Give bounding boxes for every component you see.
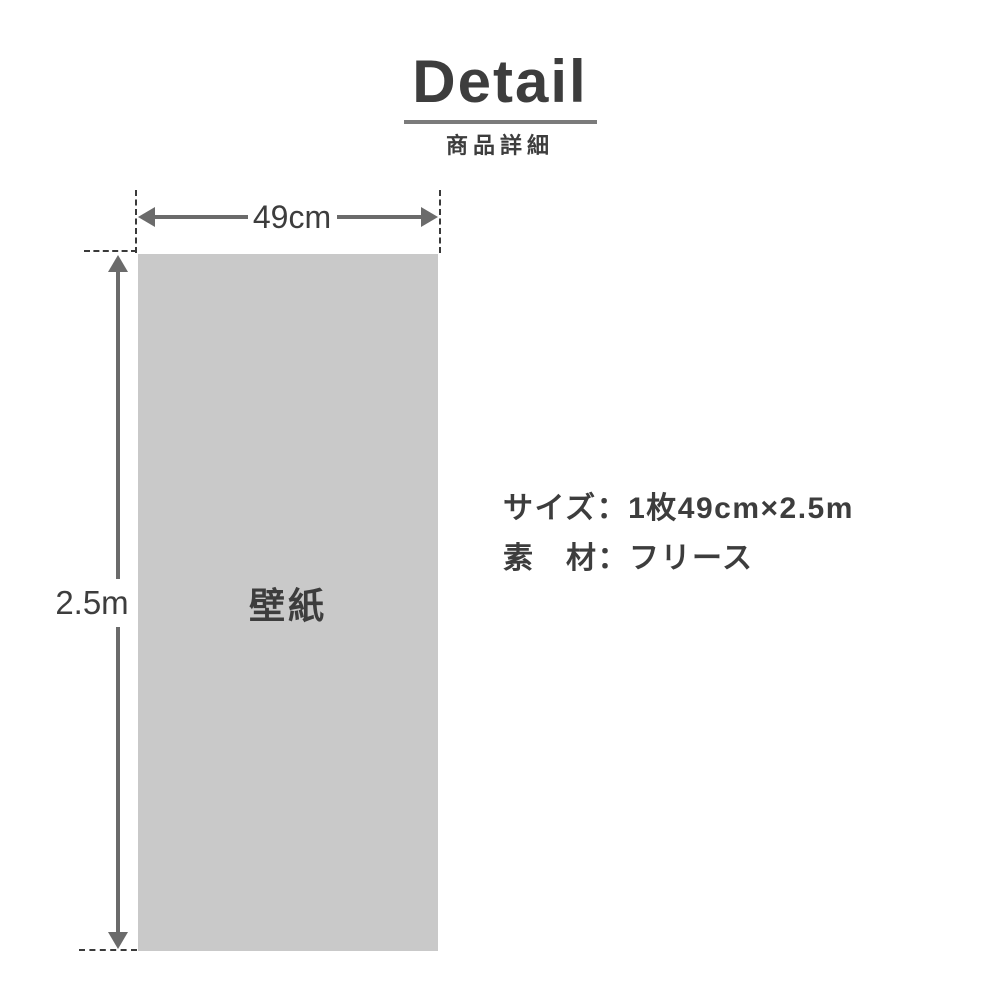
wallpaper-panel: 壁紙: [138, 254, 438, 951]
width-dimension-label: 49cm: [240, 199, 344, 236]
height-arrow-top-head-icon: [108, 255, 128, 272]
width-arrow-left-head-icon: [138, 207, 155, 227]
width-extension-line-left: [135, 190, 137, 253]
title-underline: [404, 120, 597, 124]
product-detail-page: Detail 商品詳細 壁紙 49cm 2.5m サイズ：1枚49cm×2.5m…: [0, 0, 1000, 1000]
spec-material-line: 素 材：フリース: [503, 534, 854, 584]
page-subtitle: 商品詳細: [0, 133, 1000, 159]
height-dimension-label: 2.5m: [50, 584, 134, 622]
wallpaper-panel-label: 壁紙: [249, 577, 327, 629]
width-arrow-line-left: [154, 215, 248, 219]
width-extension-line-right: [439, 190, 441, 253]
spec-size-line: サイズ：1枚49cm×2.5m: [503, 484, 854, 534]
height-extension-line-bottom: [79, 949, 137, 951]
product-specs: サイズ：1枚49cm×2.5m 素 材：フリース: [503, 484, 854, 584]
height-arrow-line-bottom: [116, 627, 120, 933]
height-arrow-bottom-head-icon: [108, 932, 128, 949]
height-arrow-line-top: [116, 271, 120, 579]
width-arrow-right-head-icon: [421, 207, 438, 227]
page-title: Detail: [0, 52, 1000, 112]
height-extension-line-top: [84, 250, 137, 252]
width-arrow-line-right: [337, 215, 422, 219]
